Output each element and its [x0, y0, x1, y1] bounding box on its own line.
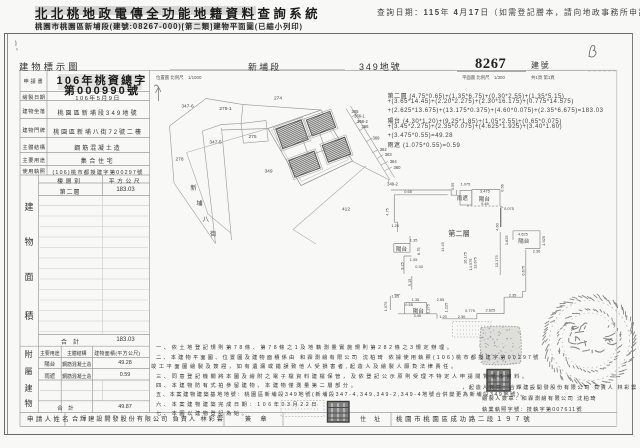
svg-text:0.075: 0.075: [504, 206, 514, 211]
svg-text:1.075: 1.075: [461, 182, 471, 187]
svg-text:1.225: 1.225: [444, 303, 449, 313]
svg-text:陽台: 陽台: [396, 245, 408, 253]
svg-text:349: 349: [264, 169, 272, 175]
svg-text:0.775: 0.775: [465, 308, 475, 313]
svg-text:5.15: 5.15: [407, 279, 412, 287]
svg-text:2.55: 2.55: [437, 297, 445, 302]
svg-text:1.625: 1.625: [504, 235, 509, 245]
svg-text:363: 363: [385, 152, 393, 157]
svg-text:1.35: 1.35: [412, 297, 420, 302]
svg-text:274: 274: [274, 96, 282, 102]
svg-text:埔: 埔: [196, 200, 202, 208]
svg-text:1.075: 1.075: [383, 302, 388, 312]
svg-text:275: 275: [248, 134, 256, 140]
svg-text:275-1: 275-1: [219, 106, 232, 112]
svg-text:347-5: 347-5: [209, 140, 222, 146]
svg-text:1.925: 1.925: [541, 236, 546, 246]
svg-text:347-6: 347-6: [181, 104, 194, 110]
svg-text:6.675: 6.675: [520, 266, 525, 276]
svg-text:2.30: 2.30: [458, 314, 466, 319]
svg-text:0.55: 0.55: [405, 302, 413, 307]
svg-text:9.25: 9.25: [400, 262, 405, 270]
svg-text:0.30: 0.30: [415, 264, 423, 269]
svg-text:3.45: 3.45: [414, 313, 422, 318]
svg-text:4.625: 4.625: [518, 232, 528, 237]
svg-text:14.45: 14.45: [440, 242, 445, 252]
svg-text:364: 364: [390, 159, 398, 164]
svg-text:349-2: 349-2: [387, 182, 398, 187]
svg-text:1.35: 1.35: [410, 238, 418, 243]
svg-text:1.20: 1.20: [439, 314, 447, 319]
svg-text:3.475: 3.475: [480, 189, 490, 194]
svg-text:369: 369: [373, 136, 381, 141]
svg-text:第二層: 第二層: [448, 229, 470, 238]
svg-text:13.675: 13.675: [473, 257, 478, 269]
svg-text:412: 412: [342, 207, 350, 213]
svg-text:2.625: 2.625: [486, 308, 496, 313]
svg-text:366: 366: [362, 124, 370, 129]
svg-text:2.36: 2.36: [533, 249, 541, 254]
svg-text:2.35: 2.35: [509, 293, 517, 298]
svg-text:新: 新: [190, 184, 196, 192]
svg-text:4.75: 4.75: [385, 208, 390, 216]
svg-text:4.60: 4.60: [494, 222, 499, 230]
svg-text:9.45: 9.45: [481, 201, 489, 206]
svg-text:1.05: 1.05: [410, 257, 418, 262]
svg-text:0.56: 0.56: [500, 184, 505, 192]
svg-text:1.20: 1.20: [391, 223, 399, 228]
svg-text:366-1: 366-1: [354, 114, 365, 119]
svg-text:雨遮: 雨遮: [457, 194, 469, 202]
svg-text:0.55: 0.55: [450, 183, 455, 191]
svg-text:360: 360: [394, 165, 402, 170]
svg-text:13.175: 13.175: [494, 255, 499, 267]
svg-text:0.65: 0.65: [404, 189, 412, 194]
svg-text:1.85: 1.85: [391, 293, 399, 298]
svg-text:街: 街: [210, 230, 216, 238]
svg-text:2.275: 2.275: [425, 304, 430, 314]
svg-text:6.75: 6.75: [416, 247, 421, 255]
svg-text:八: 八: [203, 217, 210, 224]
svg-text:278: 278: [175, 157, 183, 163]
svg-text:陽台: 陽台: [518, 237, 530, 245]
